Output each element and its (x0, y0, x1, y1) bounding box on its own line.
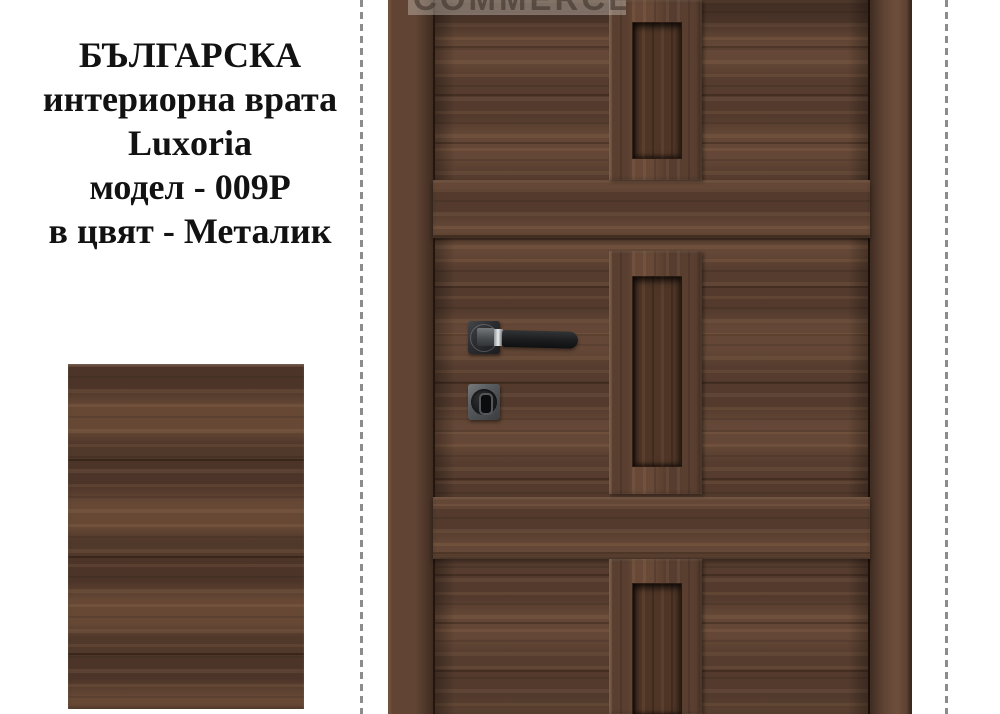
door-recessed-slot-top (632, 22, 682, 159)
keyhole-icon (479, 393, 493, 415)
door-photo: COMMERCE (388, 0, 912, 714)
door-right-stile (868, 0, 912, 714)
door-lock-cylinder (471, 389, 497, 415)
door-recessed-slot-middle (632, 276, 682, 467)
door-center-column-top (609, 0, 702, 180)
door-recessed-slot-bottom (632, 583, 682, 714)
watermark-text: COMMERCE (413, 0, 626, 15)
door-left-stile (388, 0, 435, 714)
product-title-block: БЪЛГАРСКА интериорна врата Luxoria модел… (10, 33, 370, 253)
title-line-brand: Luxoria (10, 121, 370, 165)
right-dashed-divider (945, 0, 948, 714)
title-line-color: в цвят - Металик (10, 209, 370, 253)
watermark: COMMERCE (408, 0, 626, 15)
title-line-origin: БЪЛГАРСКА (10, 33, 370, 77)
title-line-type: интериорна врата (10, 77, 370, 121)
door-lock-plate (468, 384, 500, 420)
door-cross-band-upper (433, 180, 870, 238)
product-image-canvas: БЪЛГАРСКА интериорна врата Luxoria модел… (0, 0, 1000, 714)
door-cross-band-lower (433, 497, 870, 559)
title-line-model: модел - 009P (10, 165, 370, 209)
door-center-column-middle (609, 251, 702, 494)
door-handle-boss (477, 328, 495, 346)
left-dashed-divider (360, 0, 363, 714)
door-center-column-bottom (609, 559, 702, 714)
door-handle-lever (502, 330, 578, 349)
wood-color-swatch (68, 364, 304, 709)
